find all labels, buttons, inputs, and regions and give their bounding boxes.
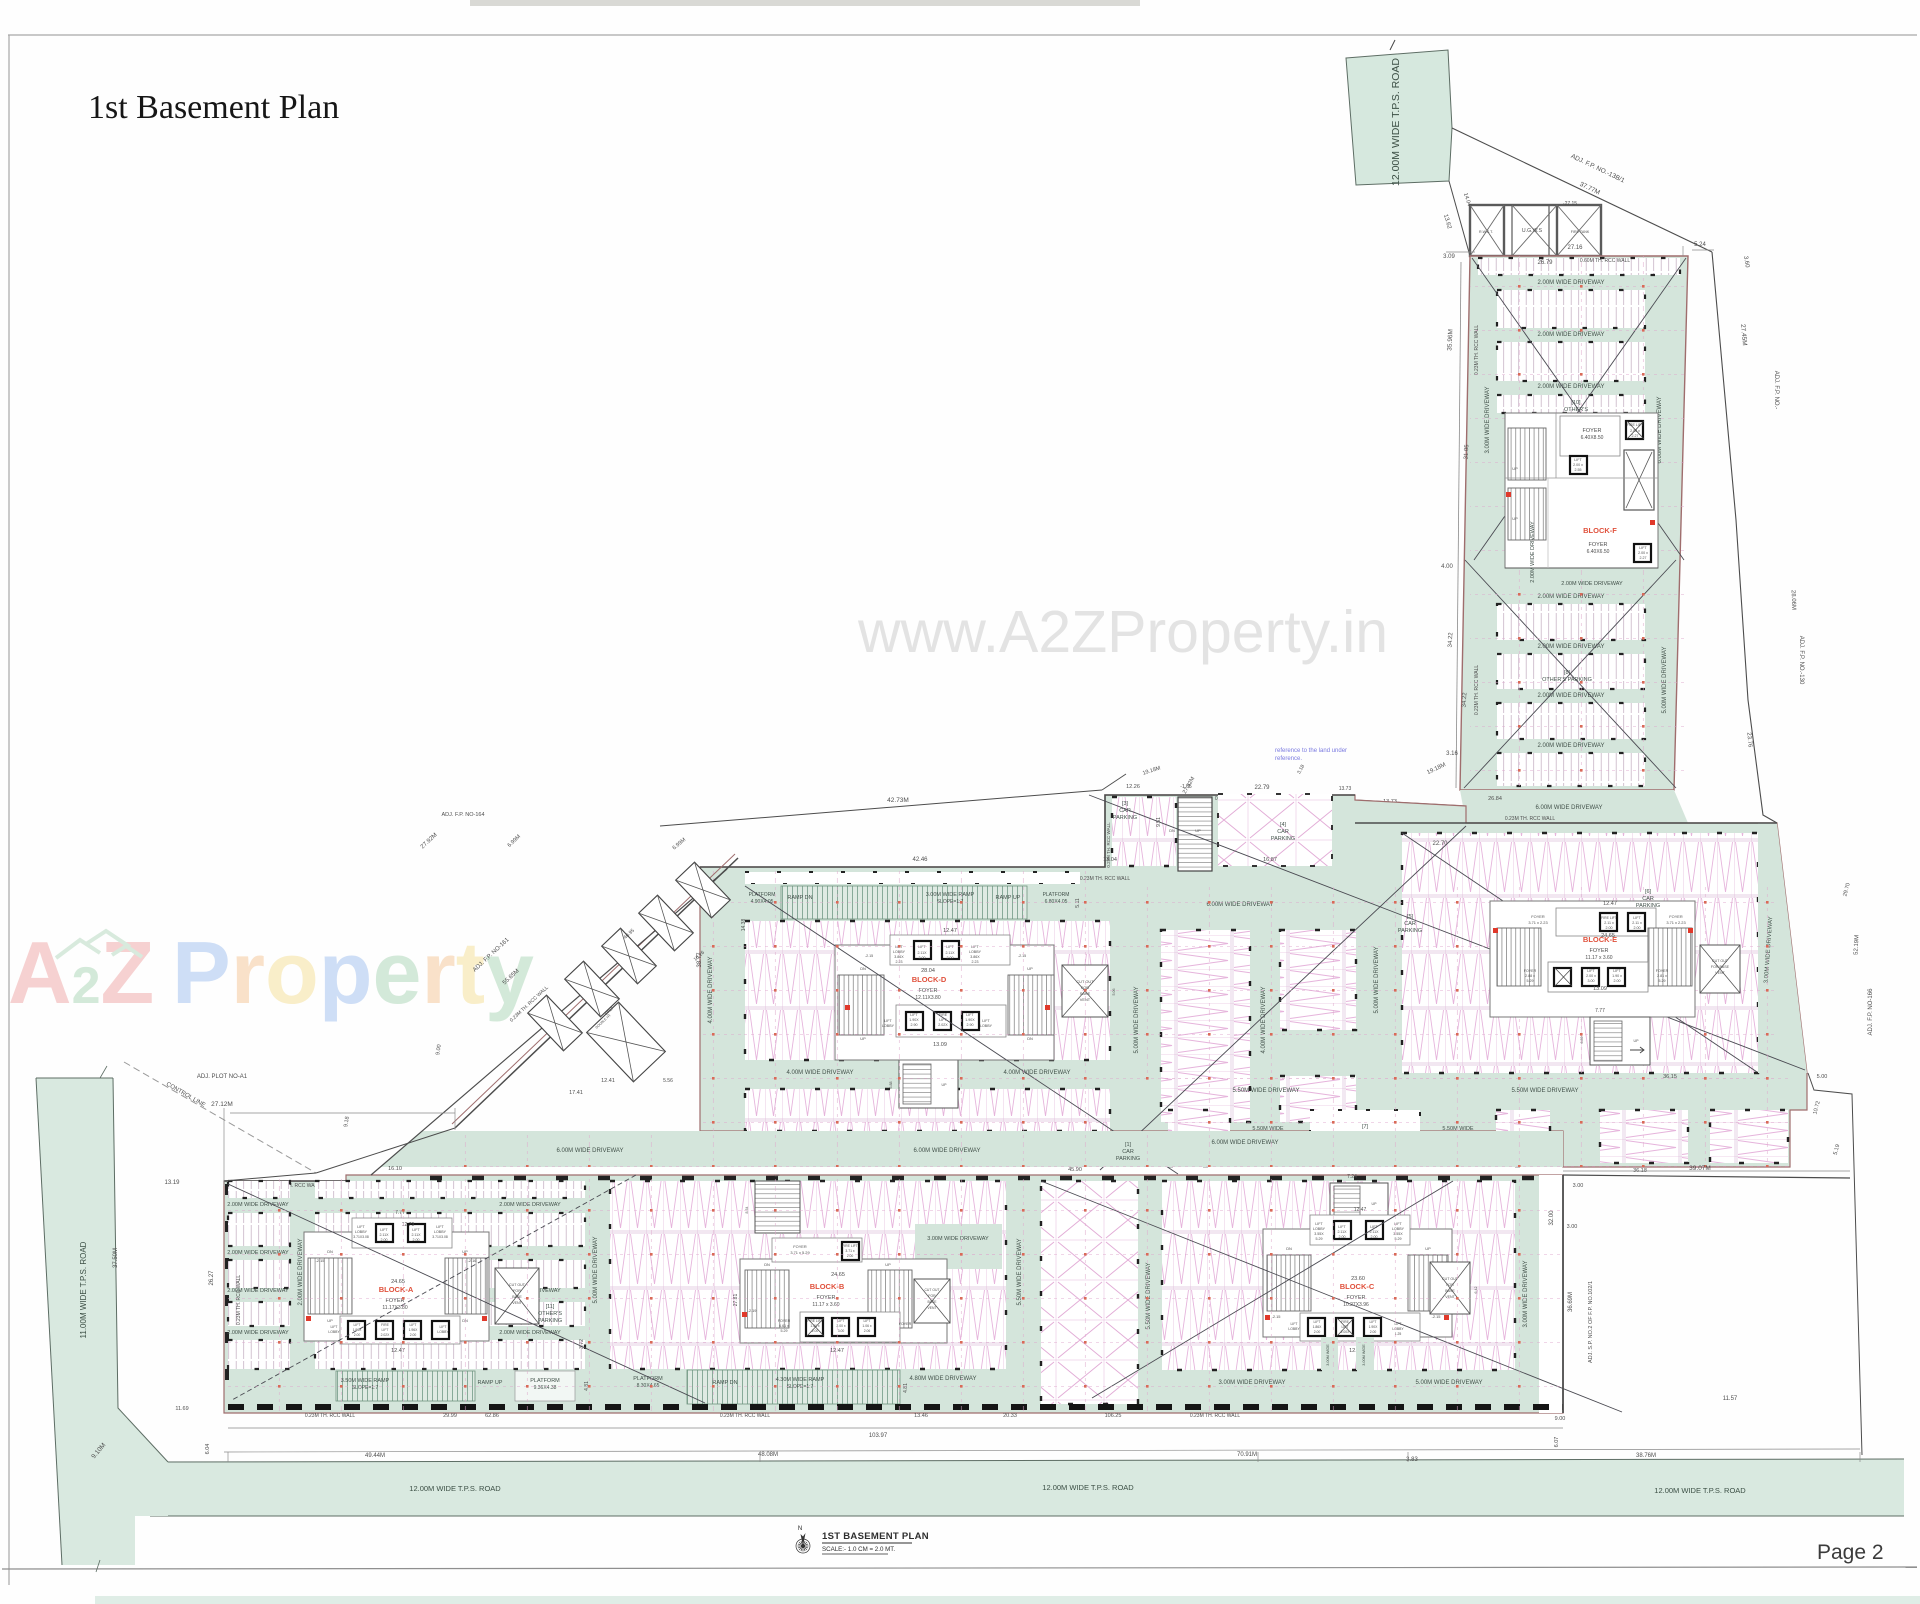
svg-text:5.56: 5.56 — [663, 1078, 673, 1084]
svg-text:13.04: 13.04 — [1103, 857, 1117, 863]
svg-text:UP: UP — [1634, 1039, 1640, 1043]
svg-text:[1]: [1] — [1125, 1142, 1132, 1148]
svg-text:24.65: 24.65 — [1601, 933, 1615, 939]
svg-text:16.87: 16.87 — [1263, 857, 1277, 863]
svg-text:PARKING: PARKING — [1398, 928, 1422, 934]
svg-text:ADJ. S.P. NO.2 OF F.P. NO.102/: ADJ. S.P. NO.2 OF F.P. NO.102/1 — [1588, 1281, 1594, 1363]
svg-text:1.90 x: 1.90 x — [1612, 974, 1622, 978]
svg-text:5.00: 5.00 — [1817, 1074, 1828, 1080]
svg-text:N: N — [798, 1526, 802, 1532]
svg-text:13.09: 13.09 — [1593, 986, 1607, 992]
svg-text:37.50M: 37.50M — [113, 1248, 119, 1268]
svg-text:LIFT: LIFT — [1639, 546, 1647, 550]
svg-text:103.97: 103.97 — [869, 1433, 888, 1439]
svg-text:PARKING: PARKING — [1636, 903, 1660, 909]
svg-text:UP: UP — [1512, 516, 1518, 521]
svg-text:11.57: 11.57 — [1723, 1396, 1738, 1402]
svg-text:12.41: 12.41 — [601, 1078, 615, 1084]
svg-text:FOYER: FOYER — [1656, 969, 1669, 973]
svg-text:2.00 x: 2.00 x — [1586, 974, 1596, 978]
svg-text:13.73: 13.73 — [1339, 786, 1352, 792]
svg-text:3.00: 3.00 — [1573, 1183, 1584, 1189]
svg-text:27.16: 27.16 — [1567, 245, 1583, 251]
svg-text:6.04: 6.04 — [205, 1444, 211, 1455]
svg-text:CAR: CAR — [1122, 1149, 1134, 1155]
svg-text:UP: UP — [1195, 828, 1201, 833]
svg-text:VENT: VENT — [1715, 971, 1725, 975]
svg-text:reference to the land under: reference to the land under — [1275, 748, 1347, 754]
svg-text:FOYER: FOYER — [1669, 914, 1683, 919]
svg-text:Page 2: Page 2 — [1817, 1541, 1884, 1564]
svg-text:14.38: 14.38 — [741, 919, 747, 932]
svg-text:6.07: 6.07 — [1554, 1437, 1560, 1448]
svg-text:3.16: 3.16 — [1446, 751, 1458, 757]
svg-text:5.29: 5.29 — [1659, 979, 1666, 983]
svg-text:FOYER: FOYER — [1524, 969, 1537, 973]
svg-text:9.00: 9.00 — [1555, 1416, 1566, 1422]
svg-text:-27.15: -27.15 — [1563, 201, 1577, 207]
svg-text:FOYER: FOYER — [1589, 542, 1608, 548]
svg-text:31.05: 31.05 — [1464, 444, 1471, 460]
svg-text:UP: UP — [1512, 466, 1518, 471]
svg-text:FOYER: FOYER — [1531, 914, 1545, 919]
svg-text:2.27: 2.27 — [1640, 556, 1647, 560]
svg-text:28.06M: 28.06M — [1790, 590, 1797, 610]
svg-text:26.84: 26.84 — [1488, 796, 1502, 802]
svg-text:11.00M WIDE T.P.S. ROAD: 11.00M WIDE T.P.S. ROAD — [79, 1241, 88, 1338]
svg-text:ADJ. PLOT NO-A1: ADJ. PLOT NO-A1 — [197, 1074, 248, 1080]
svg-text:2.00: 2.00 — [1606, 926, 1613, 930]
svg-text:42.46: 42.46 — [912, 857, 928, 863]
svg-text:2.00 x: 2.00 x — [1630, 429, 1640, 433]
svg-text:12.47: 12.47 — [1603, 901, 1617, 907]
svg-text:2.81 x: 2.81 x — [1657, 974, 1667, 978]
svg-text:2.88 x: 2.88 x — [1525, 974, 1535, 978]
svg-text:1st Basement Plan: 1st Basement Plan — [88, 89, 339, 126]
svg-text:2.00: 2.00 — [1614, 979, 1621, 983]
svg-text:34.22: 34.22 — [1448, 632, 1455, 648]
svg-text:12.26: 12.26 — [1126, 784, 1140, 790]
svg-text:ADJ. F.P. NO.-: ADJ. F.P. NO.- — [1773, 371, 1779, 410]
svg-text:2.27: 2.27 — [1632, 434, 1639, 438]
svg-text:2.00 x: 2.00 x — [1638, 551, 1648, 555]
svg-text:36.15: 36.15 — [1663, 1074, 1677, 1080]
svg-text:49.44M: 49.44M — [365, 1453, 385, 1459]
svg-text:LIFT: LIFT — [1613, 969, 1621, 973]
svg-text:0.23M TH. RCC WALL: 0.23M TH. RCC WALL — [1505, 816, 1556, 822]
svg-text:2.00M WIDE DRIVEWAY: 2.00M WIDE DRIVEWAY — [1530, 521, 1536, 583]
svg-text:45.90: 45.90 — [1068, 1167, 1082, 1173]
svg-text:LIFT: LIFT — [1633, 916, 1641, 920]
svg-text:LIFT: LIFT — [1587, 969, 1595, 973]
svg-text:FOYER: FOYER — [1583, 428, 1602, 434]
svg-text:ADJ. F.P. NO.-130: ADJ. F.P. NO.-130 — [1798, 636, 1804, 685]
svg-text:FIRE TANK: FIRE TANK — [1571, 230, 1590, 234]
svg-text:5.24: 5.24 — [1694, 242, 1706, 248]
svg-text:FIRE LIFT: FIRE LIFT — [1627, 423, 1644, 427]
svg-text:2.11 x: 2.11 x — [1632, 921, 1642, 925]
svg-text:17.41: 17.41 — [569, 1090, 583, 1096]
svg-text:PARKING: PARKING — [1271, 836, 1295, 842]
svg-text:13.46: 13.46 — [914, 1413, 928, 1419]
svg-text:[6]: [6] — [1645, 889, 1652, 895]
svg-text:38.76M: 38.76M — [1636, 1453, 1656, 1459]
svg-text:13.19: 13.19 — [164, 1180, 180, 1186]
svg-text:ADJ. F.P. NO-166: ADJ. F.P. NO-166 — [1868, 988, 1874, 1036]
svg-text:52.19M: 52.19M — [1853, 935, 1860, 955]
svg-text:22.79: 22.79 — [1254, 785, 1270, 791]
svg-text:FIRE LIFT: FIRE LIFT — [1601, 916, 1617, 920]
svg-text:[3]: [3] — [1122, 801, 1129, 807]
svg-text:www.A2ZProperty.in: www.A2ZProperty.in — [857, 599, 1388, 665]
svg-text:ADJ. F.P. NO-164: ADJ. F.P. NO-164 — [442, 812, 485, 818]
svg-text:3.71 x 2.23: 3.71 x 2.23 — [1528, 920, 1547, 925]
svg-text:6.40X8.50: 6.40X8.50 — [1581, 435, 1604, 441]
svg-text:2.00M WIDE DRIVEWAY: 2.00M WIDE DRIVEWAY — [1561, 581, 1623, 587]
svg-text:CAR: CAR — [1277, 829, 1289, 835]
svg-text:6.00M WIDE DRIVEWAY: 6.00M WIDE DRIVEWAY — [1535, 805, 1602, 811]
svg-text:0.23M TH. RCC WALL: 0.23M TH. RCC WALL — [720, 1413, 771, 1419]
svg-text:2.00: 2.00 — [1634, 926, 1641, 930]
svg-text:70.91M: 70.91M — [1237, 1452, 1257, 1458]
svg-text:20.33: 20.33 — [1003, 1413, 1017, 1419]
svg-text:62.86: 62.86 — [485, 1413, 499, 1419]
svg-text:1ST BASEMENT PLAN: 1ST BASEMENT PLAN — [822, 1531, 929, 1542]
svg-text:SCALE:- 1.0 CM = 2.0 MT.: SCALE:- 1.0 CM = 2.0 MT. — [822, 1546, 895, 1553]
svg-text:CUT OUT: CUT OUT — [1712, 959, 1729, 963]
svg-text:DN: DN — [1169, 828, 1175, 833]
svg-text:CAR: CAR — [1404, 921, 1416, 927]
svg-text:reference.: reference. — [1275, 756, 1302, 762]
svg-text:34.22: 34.22 — [1462, 692, 1469, 708]
svg-text:2.00 x: 2.00 x — [1573, 463, 1583, 467]
svg-text:3.71 x 2.23: 3.71 x 2.23 — [1666, 920, 1685, 925]
svg-text:7.77: 7.77 — [1595, 1008, 1605, 1014]
svg-text:11.69: 11.69 — [175, 1406, 188, 1412]
svg-text:29.99: 29.99 — [443, 1413, 457, 1419]
svg-text:12.00M WIDE T.P.S. ROAD: 12.00M WIDE T.P.S. ROAD — [1654, 1486, 1746, 1495]
svg-text:36.69M: 36.69M — [1568, 1292, 1574, 1312]
svg-text:2.55: 2.55 — [1575, 468, 1582, 472]
svg-text:BLOCK-F: BLOCK-F — [1583, 526, 1617, 535]
svg-text:16.10: 16.10 — [388, 1166, 402, 1172]
svg-text:35.96M: 35.96M — [1446, 329, 1454, 351]
svg-text:CAR: CAR — [1642, 896, 1654, 902]
svg-text:[5]: [5] — [1407, 914, 1414, 920]
svg-text:Property: Property — [172, 923, 534, 1022]
svg-text:LIFT: LIFT — [1574, 458, 1582, 462]
svg-text:27.12M: 27.12M — [211, 1101, 233, 1108]
svg-text:0.23M TH. RCC WALL: 0.23M TH. RCC WALL — [305, 1413, 356, 1419]
svg-text:32.00: 32.00 — [1549, 1210, 1555, 1226]
svg-text:4.00: 4.00 — [1441, 564, 1453, 570]
svg-text:106.25: 106.25 — [1105, 1413, 1122, 1419]
svg-text:12.00M WIDE T.P.S. ROAD: 12.00M WIDE T.P.S. ROAD — [409, 1484, 501, 1493]
svg-text:3.00: 3.00 — [1588, 979, 1595, 983]
svg-text:FOR BASE: FOR BASE — [1711, 965, 1730, 969]
svg-text:U.G.W.S: U.G.W.S — [1522, 228, 1543, 234]
svg-text:11.17 x 3.60: 11.17 x 3.60 — [1585, 955, 1612, 961]
svg-text:2.11 x: 2.11 x — [1604, 921, 1614, 925]
svg-text:PARKING: PARKING — [1113, 815, 1137, 821]
svg-text:PARKING: PARKING — [1116, 1156, 1140, 1162]
svg-text:3.09: 3.09 — [1443, 254, 1455, 260]
svg-text:12.00M WIDE T.P.S. ROAD: 12.00M WIDE T.P.S. ROAD — [1042, 1483, 1134, 1492]
svg-text:6.40X6.50: 6.40X6.50 — [1587, 549, 1610, 555]
svg-text:12.00M WIDE T.P.S. ROAD: 12.00M WIDE T.P.S. ROAD — [1390, 58, 1402, 186]
svg-text:R.W.S.T.: R.W.S.T. — [1479, 230, 1493, 234]
svg-text:48.08M: 48.08M — [758, 1452, 778, 1458]
svg-text:22.70: 22.70 — [1432, 841, 1448, 847]
svg-text:6.89: 6.89 — [1580, 1037, 1584, 1044]
svg-text:0.23M TH. RCC WALL: 0.23M TH. RCC WALL — [1190, 1413, 1241, 1419]
svg-text:3.00: 3.00 — [1567, 1224, 1578, 1230]
svg-text:5.29: 5.29 — [1527, 979, 1534, 983]
svg-text:42.73M: 42.73M — [887, 797, 909, 804]
svg-text:FOYER: FOYER — [1590, 948, 1609, 954]
svg-text:[4]: [4] — [1280, 822, 1287, 828]
svg-text:26.27: 26.27 — [209, 1270, 215, 1286]
